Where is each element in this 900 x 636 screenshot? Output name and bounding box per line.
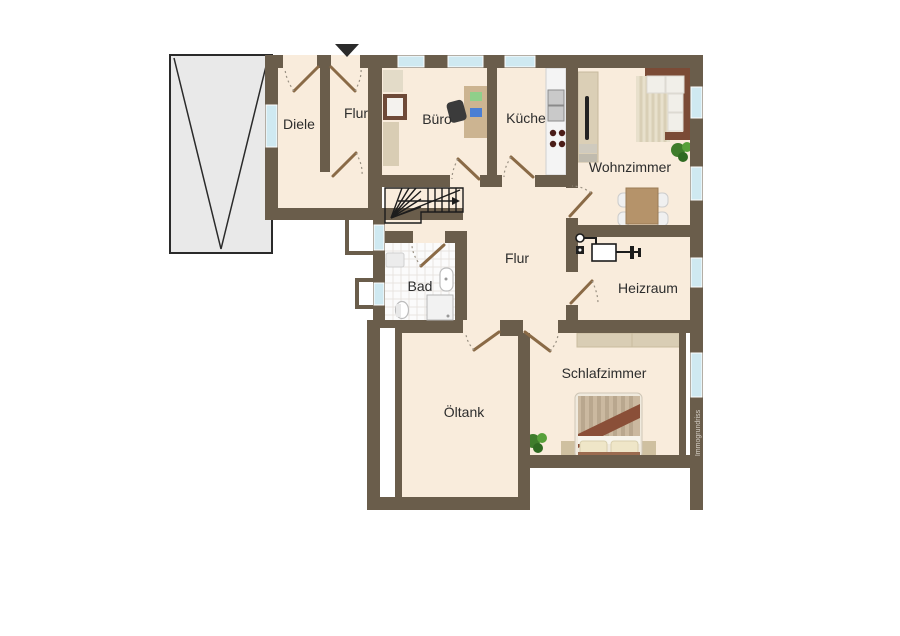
room-label-buero: Büro bbox=[422, 111, 452, 127]
floor-plan: Diele Flur Büro Küche Wohnzimmer Heizrau… bbox=[0, 0, 900, 636]
washbasin bbox=[386, 253, 404, 267]
watermark: Immogrundriss bbox=[695, 409, 702, 456]
room-label-flur-mitte: Flur bbox=[505, 250, 529, 266]
room-label-diele: Diele bbox=[283, 116, 315, 132]
sink bbox=[548, 90, 564, 105]
room-label-heizraum: Heizraum bbox=[618, 280, 678, 296]
room-label-flur-top: Flur bbox=[344, 105, 368, 121]
wardrobe bbox=[577, 333, 687, 347]
room-label-bad: Bad bbox=[408, 278, 433, 294]
light-well bbox=[345, 216, 373, 255]
dining-table bbox=[618, 188, 668, 226]
light-well bbox=[355, 278, 373, 309]
nightstand bbox=[641, 441, 656, 457]
room-label-wohnzimmer: Wohnzimmer bbox=[589, 159, 672, 175]
room-label-schlafzimmer: Schlafzimmer bbox=[562, 365, 647, 381]
nightstand bbox=[561, 441, 576, 457]
kitchen-counter bbox=[546, 68, 566, 175]
room-label-oeltank: Öltank bbox=[444, 403, 485, 420]
garage bbox=[170, 55, 272, 253]
room-label-kueche: Küche bbox=[506, 110, 546, 126]
double-bed bbox=[575, 393, 642, 458]
floor-plan-drawing: Diele Flur Büro Küche Wohnzimmer Heizrau… bbox=[0, 0, 900, 636]
